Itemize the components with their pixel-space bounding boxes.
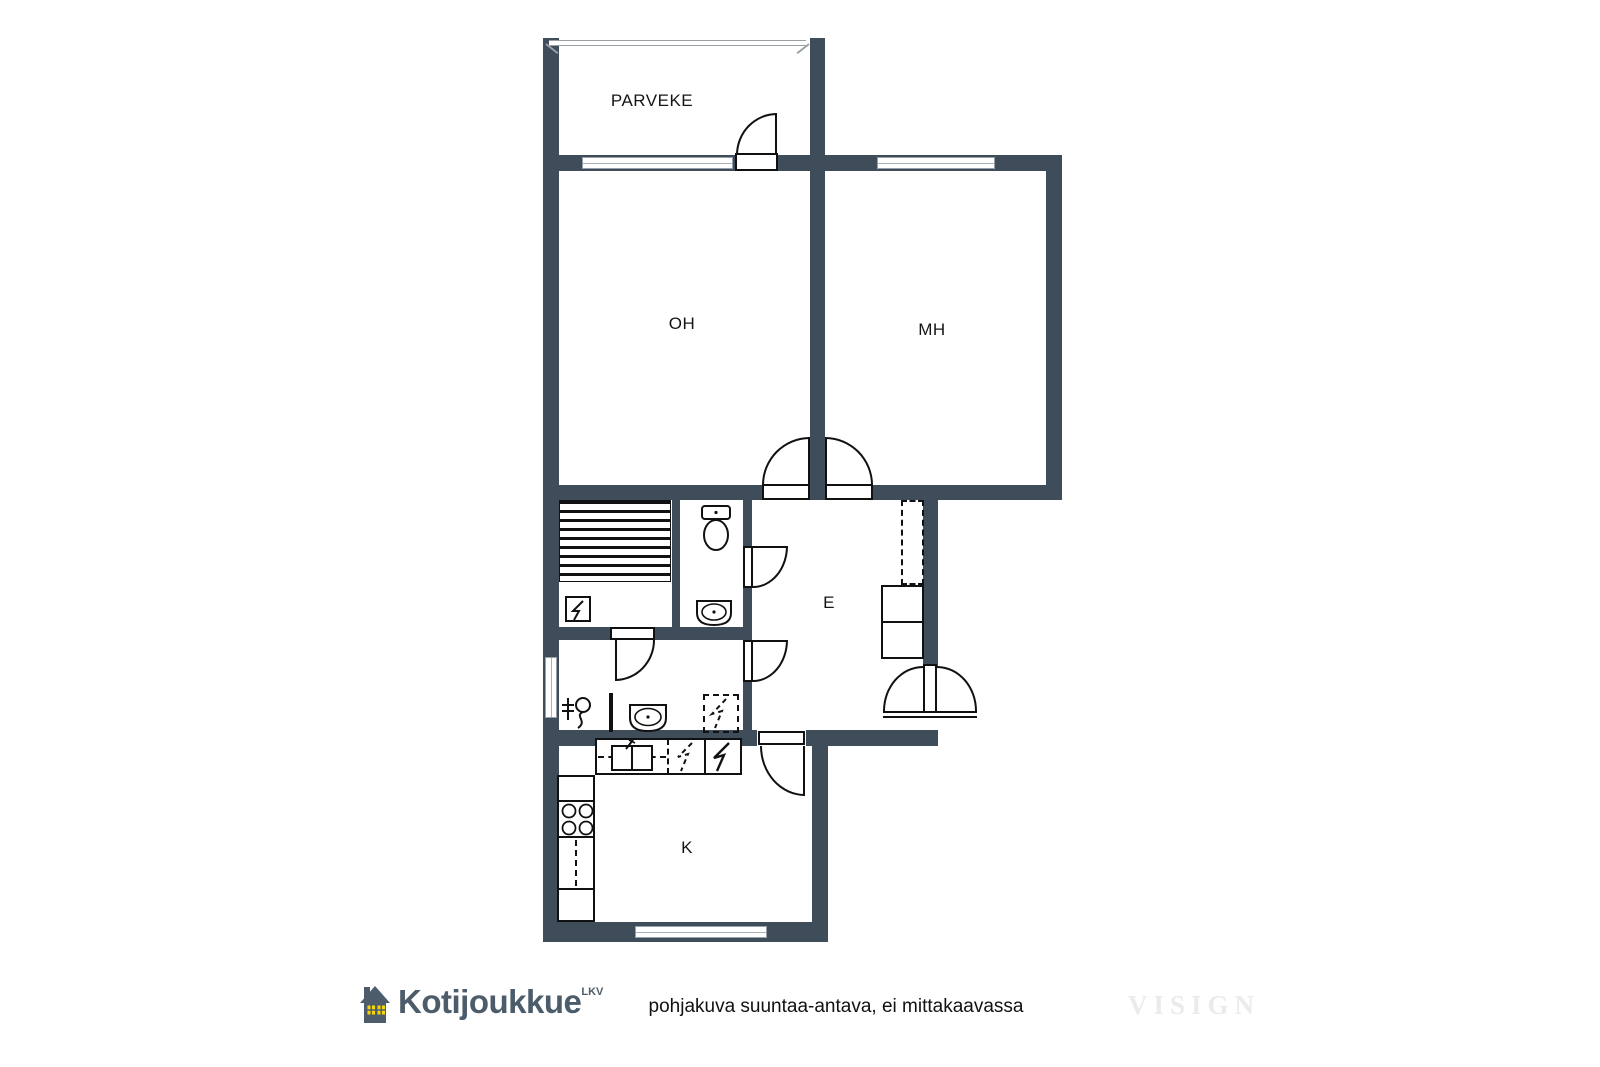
wall — [873, 485, 1062, 500]
room-label-living: OH — [642, 314, 722, 334]
window — [545, 657, 557, 718]
wall — [559, 627, 610, 640]
wall — [810, 171, 825, 485]
floorplan-page: PARVEKE OH MH E K — [0, 0, 1600, 1067]
wall — [543, 38, 559, 171]
fridge-icon — [709, 741, 739, 773]
shower-icon — [560, 694, 596, 734]
wall — [810, 38, 825, 171]
wall — [543, 485, 762, 500]
stove-burners-icon — [557, 800, 595, 838]
wall — [1046, 171, 1062, 500]
door-swing — [883, 666, 923, 711]
door-leaf — [825, 484, 873, 500]
door-swing — [753, 546, 788, 588]
door-leaf — [743, 640, 753, 682]
wall — [743, 682, 752, 732]
closet — [881, 585, 924, 623]
balcony-railing — [549, 40, 806, 46]
room-label-kitchen: K — [647, 838, 727, 858]
room-label-balcony: PARVEKE — [582, 91, 722, 111]
washing-machine-icon — [703, 694, 739, 733]
door-leaf — [610, 627, 655, 640]
door-leaf — [735, 153, 778, 171]
sink-icon — [628, 703, 668, 733]
counter-divider — [704, 739, 706, 774]
wall — [743, 500, 752, 546]
partition-wall — [609, 693, 613, 732]
watermark-text: VISIGN — [1128, 990, 1260, 1021]
brand-logo: KotijoukkueLKV — [398, 983, 603, 1021]
dishwasher-icon — [672, 741, 704, 773]
window — [877, 157, 995, 169]
room-label-bedroom: MH — [892, 320, 972, 340]
window — [582, 157, 733, 169]
door-swing — [736, 113, 777, 155]
window — [635, 926, 767, 938]
kitchen-cabinet — [557, 775, 595, 802]
sauna-bench — [559, 500, 671, 582]
door-swing — [762, 437, 810, 485]
door-swing — [937, 666, 977, 711]
sauna-stove-icon — [565, 596, 591, 622]
wall — [810, 485, 825, 500]
door-swing — [825, 437, 873, 485]
door-swing — [753, 640, 788, 682]
closet — [881, 621, 924, 659]
door-leaf — [762, 484, 810, 500]
door-leaf — [758, 731, 805, 745]
brand-name: Kotijoukkue — [398, 983, 581, 1020]
door-leaf — [923, 664, 937, 713]
toilet-icon — [699, 504, 733, 552]
wall — [812, 746, 828, 942]
door-leaf — [743, 546, 753, 588]
kitchen-cabinet — [557, 888, 595, 922]
wall — [655, 627, 743, 640]
door-swing — [615, 640, 655, 681]
wall — [923, 500, 938, 666]
faucet-icon — [622, 738, 636, 752]
wall — [806, 730, 938, 746]
counter-divider — [667, 739, 669, 774]
wardrobe — [901, 500, 924, 585]
room-label-entry: E — [809, 593, 849, 613]
cabinet-line — [575, 840, 577, 886]
door-swing — [760, 746, 805, 796]
wall — [743, 588, 752, 640]
brand-house-icon — [360, 984, 390, 1024]
brand-suffix: LKV — [581, 986, 603, 998]
wall — [672, 500, 680, 640]
sink-icon — [695, 599, 733, 627]
disclaimer-text: pohjakuva suuntaa-antava, ei mittakaavas… — [636, 996, 1036, 1018]
